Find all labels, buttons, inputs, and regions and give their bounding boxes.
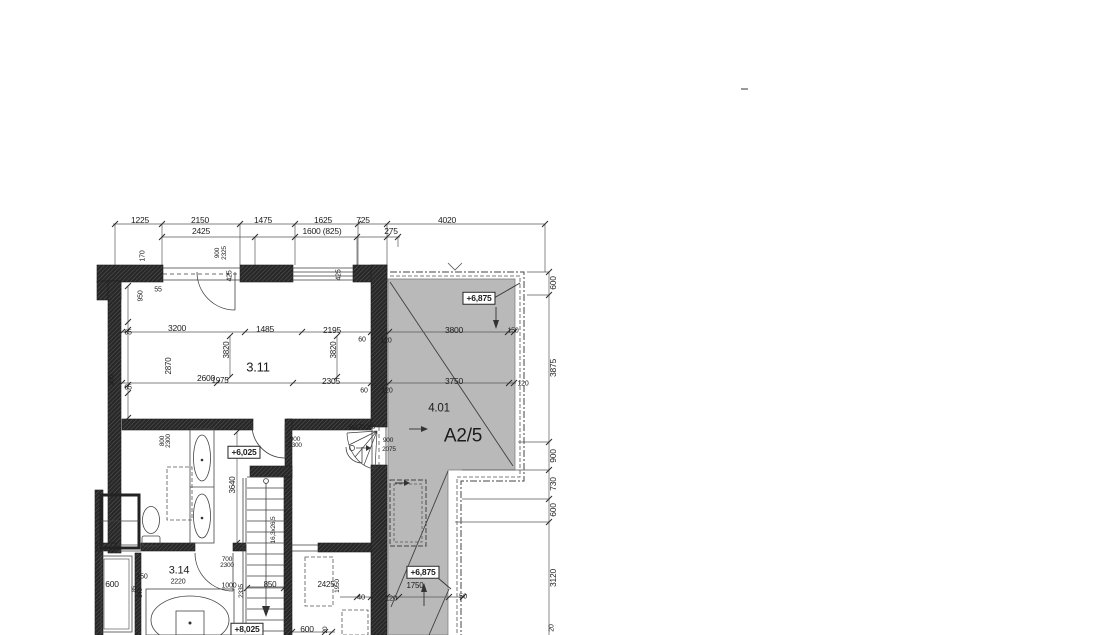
dim-label: 1485 — [256, 325, 274, 334]
floor-plan-canvas: 1225215014751625725402024251600 (825)275… — [0, 0, 1111, 635]
elevation-marker: +6,875 — [462, 292, 495, 305]
door-size: 2300 — [166, 434, 173, 448]
dim-label: 3800 — [445, 326, 463, 335]
dim-label: 1750 — [407, 582, 424, 590]
dim-label: 120 — [517, 381, 528, 388]
dim-label: 3640 — [229, 477, 237, 494]
dim-label: 725 — [356, 216, 370, 225]
dim-label: 275 — [384, 227, 398, 236]
dim-label: 2305 — [322, 377, 340, 386]
dim-label: 150 — [507, 328, 518, 335]
dim-label: 20 — [549, 624, 556, 631]
dim-label: 950 — [138, 290, 145, 301]
dim-label: 1625 — [314, 216, 332, 225]
dim-label: 120 — [381, 388, 392, 395]
dim-label: 170 — [140, 250, 147, 261]
dim-label: 600 — [549, 503, 558, 517]
dim-label: 2425 — [192, 227, 210, 236]
dim-label: 1225 — [131, 216, 149, 225]
dim-label: 1975 — [212, 377, 229, 385]
dim-label: 65 — [124, 385, 131, 392]
door-size: 2300 — [220, 563, 234, 570]
dim-label: 60 — [358, 337, 365, 344]
dim-label: 3120 — [549, 569, 558, 587]
dim-label: 3750 — [445, 377, 463, 386]
dim-label: 2870 — [165, 358, 173, 375]
room-label: 3.11 — [246, 361, 270, 374]
dim-label: 425 — [227, 270, 234, 281]
dim-label: 900 — [549, 449, 558, 463]
dim-label: 60 — [360, 388, 367, 395]
dim-label: 600 — [105, 580, 119, 589]
dim-label: 3820 — [330, 342, 338, 359]
dim-label: 3875 — [549, 359, 558, 377]
dim-label: 2425 — [318, 581, 335, 589]
dim-label: 50 — [459, 592, 467, 600]
dim-label: 120 — [385, 594, 397, 602]
dim-label: 2220 — [171, 579, 186, 586]
stray-mark — [741, 88, 748, 90]
dim-label: 1600 (825) — [302, 227, 341, 236]
dim-label: 1000 — [222, 583, 237, 590]
dim-label: 20 — [323, 627, 330, 634]
room-label: 3.14 — [169, 566, 190, 577]
dim-label: 55 — [154, 287, 161, 294]
dim-label: 3820 — [223, 342, 231, 359]
dim-label: 850 — [264, 581, 277, 589]
door-size: 2075 — [382, 447, 396, 454]
dim-label: 2195 — [323, 326, 341, 335]
dim-label: 65 — [124, 330, 131, 337]
dim-label: 1950 — [335, 579, 342, 593]
door-size: 2300 — [288, 443, 302, 450]
door-size: 2325 — [222, 246, 229, 260]
dim-label: 1475 — [254, 216, 272, 225]
stair-annotation: 5x170/260 — [349, 425, 375, 431]
dim-label: 2150 — [191, 216, 209, 225]
room-label: 4.01 — [428, 403, 450, 415]
dim-label: 4020 — [438, 216, 456, 225]
dim-label: 120 — [380, 338, 391, 345]
dimension-labels-layer: 1225215014751625725402024251600 (825)275… — [0, 0, 1111, 635]
elevation-marker: +8,025 — [230, 623, 263, 635]
dim-label: 2335 — [239, 584, 246, 598]
dim-label: 425 — [336, 269, 343, 280]
dim-label: 600 — [549, 276, 558, 290]
dim-label: 340 — [138, 588, 144, 597]
dim-label: 300 — [109, 374, 116, 385]
dim-label: 600 — [300, 625, 314, 634]
dim-label: 3200 — [168, 324, 186, 333]
unit-label: A2/5 — [444, 427, 482, 446]
dim-label: 40 — [357, 593, 365, 601]
elevation-marker: +6,875 — [406, 566, 439, 579]
door-size: 900 — [383, 438, 393, 445]
stair-annotation: 16,3x26,5 — [271, 517, 278, 544]
dim-label: 730 — [549, 477, 558, 491]
elevation-marker: +6,025 — [227, 446, 260, 459]
dim-label: 150 — [136, 574, 147, 581]
